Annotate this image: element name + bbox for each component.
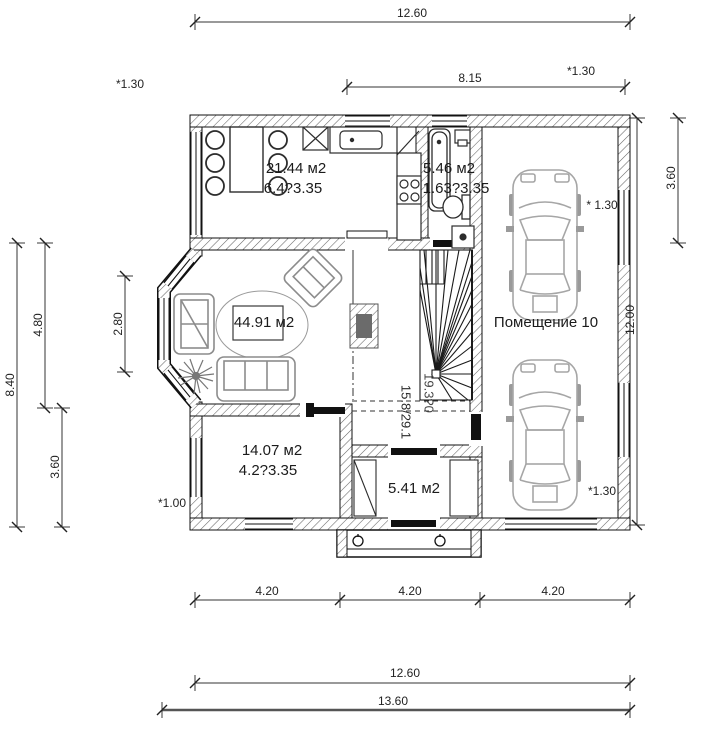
room-label-bathroom-area: 5.46 м2 (423, 160, 475, 177)
kitchen-cabinet-icon (303, 127, 328, 150)
room-label-bedroom-size: 4.2?3.35 (239, 462, 297, 479)
room-label-living-area: 44.91 м2 (234, 314, 294, 331)
stairs-pitch-label: 15.8/29.1 (399, 385, 414, 439)
loveseat-icon (174, 294, 214, 354)
dim-bottom-overall: 12.60 (390, 666, 420, 680)
dim-bottom-span-2: 4.20 (398, 584, 421, 598)
dim-left-upper: 4.80 (31, 313, 45, 336)
room-label-bathroom-size: 1.63?3.35 (423, 180, 490, 197)
room-label-bedroom-area: 14.07 м2 (242, 442, 302, 459)
room-label-kitchen-size: 6.4?3.35 (264, 180, 322, 197)
car-icon (506, 170, 584, 320)
sofa-icon (217, 357, 295, 401)
bath-sink-icon (455, 130, 470, 146)
dim-left-overall: 8.40 (3, 373, 17, 396)
dim-bottom-span-1: 4.20 (255, 584, 278, 598)
toilet-icon (443, 195, 470, 219)
car-icon (506, 360, 584, 510)
room-label-entry-area: 5.41 м2 (388, 480, 440, 497)
kitchen-sink-icon (330, 127, 397, 153)
room-label-garage-name: Помещение 10 (494, 314, 598, 331)
dim-left-bay: 2.80 (111, 312, 125, 335)
stove-icon (397, 176, 421, 204)
dim-bottom-span-3: 4.20 (541, 584, 564, 598)
dining-table-icon (230, 127, 263, 192)
dim-right-overall: 12.00 (623, 305, 637, 335)
dim-top-overall: 12.60 (397, 6, 427, 20)
floor-plan: 12.60 8.15 *1.30 *1.30 8.40 4.80 3.60 2.… (0, 0, 705, 750)
armchair-icon (282, 247, 344, 309)
dim-right-upper: 3.60 (664, 166, 678, 189)
floor-plan-drawing (0, 0, 705, 750)
tv-stand-icon (350, 304, 378, 348)
dim-bottom-total: 13.60 (378, 694, 408, 708)
dim-top-span: 8.15 (458, 71, 481, 85)
window-annotation: * 1.30 (586, 198, 617, 212)
porch (337, 530, 481, 557)
window-annotation: *1.00 (158, 496, 186, 510)
window-annotation: *1.30 (567, 64, 595, 78)
window-annotation: *1.30 (588, 484, 616, 498)
dim-left-lower: 3.60 (48, 455, 62, 478)
room-label-kitchen-area: 21.44 м2 (266, 160, 326, 177)
stairs-secondary-label: 19.3?0 (422, 373, 437, 413)
washing-machine-icon (452, 226, 474, 248)
window-annotation: *1.30 (116, 77, 144, 91)
